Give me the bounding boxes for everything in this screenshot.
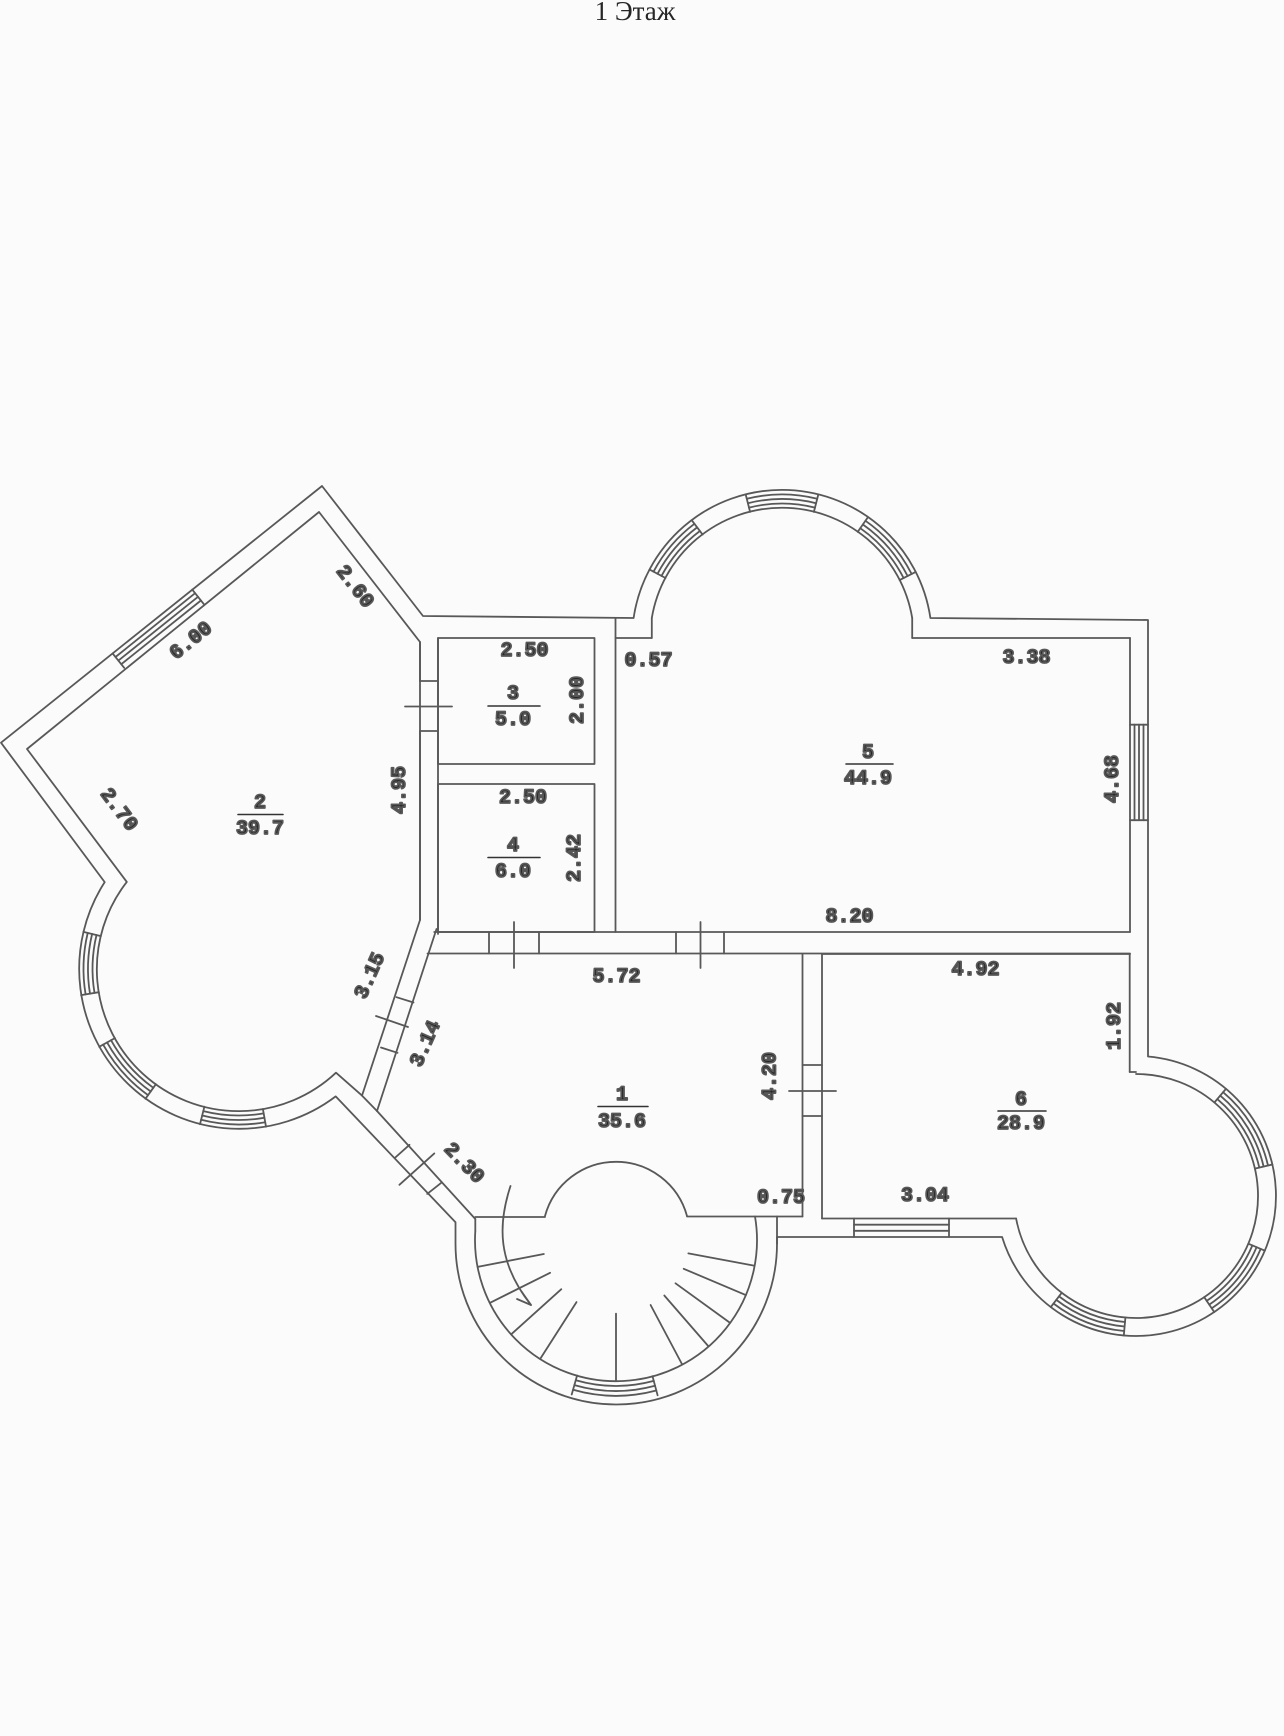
- svg-text:2.50: 2.50: [500, 640, 548, 663]
- svg-text:4.92: 4.92: [951, 959, 999, 982]
- svg-text:0.57: 0.57: [624, 650, 672, 673]
- svg-text:5: 5: [862, 742, 874, 765]
- svg-text:8.20: 8.20: [825, 906, 873, 929]
- svg-text:3: 3: [507, 683, 519, 706]
- svg-text:4.95: 4.95: [389, 766, 412, 814]
- svg-text:5.0: 5.0: [495, 709, 531, 732]
- svg-text:1: 1: [616, 1084, 628, 1107]
- svg-text:4: 4: [507, 835, 519, 858]
- svg-text:44.9: 44.9: [844, 768, 892, 791]
- svg-text:39.7: 39.7: [236, 818, 284, 841]
- svg-text:1 Этаж: 1 Этаж: [595, 0, 676, 26]
- svg-text:2.50: 2.50: [499, 787, 547, 810]
- svg-text:3.04: 3.04: [901, 1185, 949, 1208]
- svg-text:3.38: 3.38: [1002, 647, 1050, 670]
- svg-text:6: 6: [1015, 1089, 1027, 1112]
- svg-text:2.00: 2.00: [567, 676, 590, 724]
- svg-text:2: 2: [254, 792, 266, 815]
- svg-text:4.20: 4.20: [760, 1052, 783, 1100]
- svg-text:28.9: 28.9: [997, 1113, 1045, 1136]
- svg-text:0.75: 0.75: [757, 1187, 805, 1210]
- svg-text:1.92: 1.92: [1104, 1002, 1127, 1050]
- svg-text:2.42: 2.42: [564, 834, 587, 882]
- svg-text:4.68: 4.68: [1102, 755, 1125, 803]
- svg-text:35.6: 35.6: [598, 1111, 646, 1134]
- svg-text:6.0: 6.0: [495, 861, 531, 884]
- svg-text:5.72: 5.72: [592, 966, 640, 989]
